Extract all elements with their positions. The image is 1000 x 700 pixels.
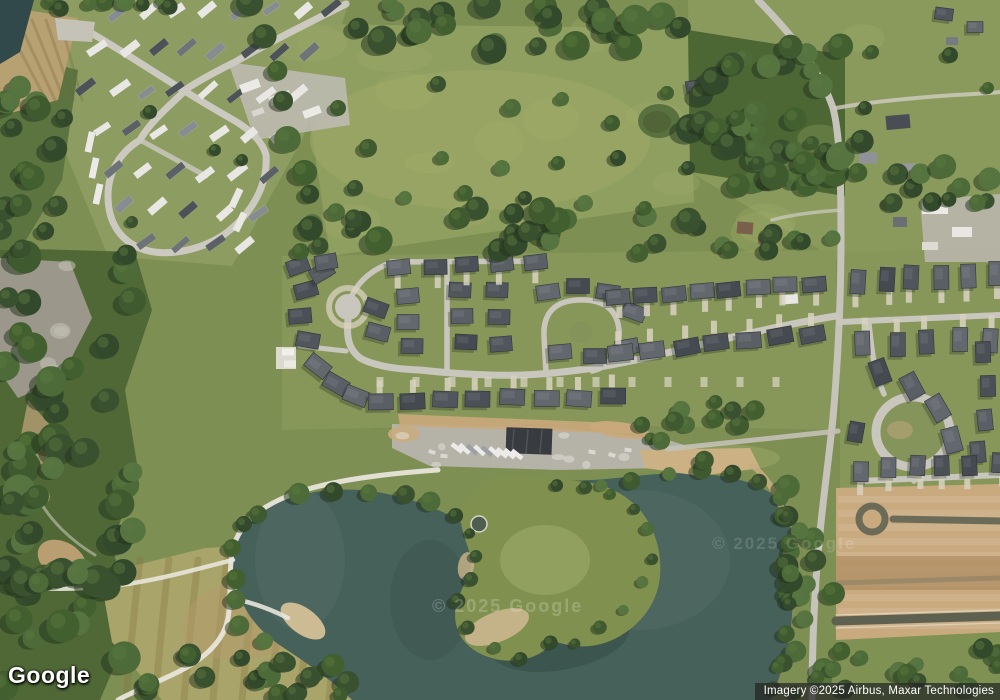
imagery-attribution: Imagery ©2025 Airbus, Maxar Technologies <box>755 683 1000 700</box>
satellite-map-canvas[interactable]: © 2025 Google © 2025 Google Google Image… <box>0 0 1000 700</box>
google-logo: Google <box>8 662 90 689</box>
satellite-imagery <box>0 0 1000 700</box>
